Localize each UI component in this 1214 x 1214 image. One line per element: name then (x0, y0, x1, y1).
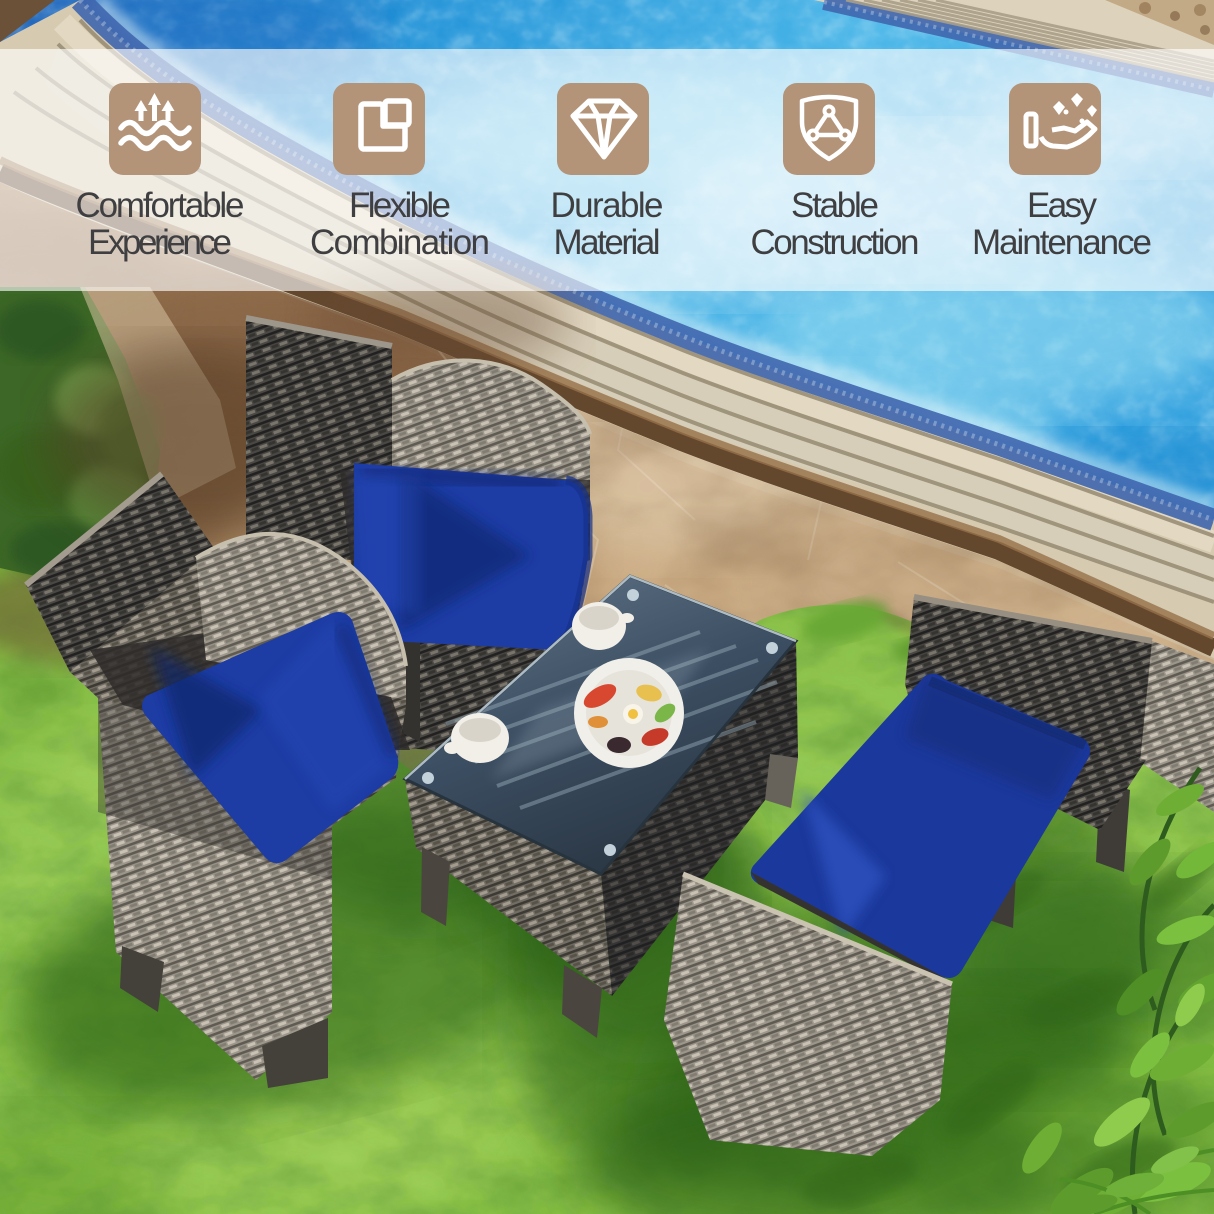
svg-text:Experience: Experience (88, 223, 232, 262)
svg-text:Flexible: Flexible (349, 186, 451, 225)
svg-text:Maintenance: Maintenance (972, 223, 1152, 262)
svg-text:Durable: Durable (551, 186, 664, 225)
svg-text:Stable: Stable (791, 186, 879, 225)
svg-text:Material: Material (554, 223, 661, 262)
svg-text:Comfortable: Comfortable (76, 186, 245, 225)
svg-text:Construction: Construction (751, 223, 920, 262)
svg-text:Easy: Easy (1027, 186, 1098, 225)
svg-text:Combination: Combination (310, 223, 490, 262)
